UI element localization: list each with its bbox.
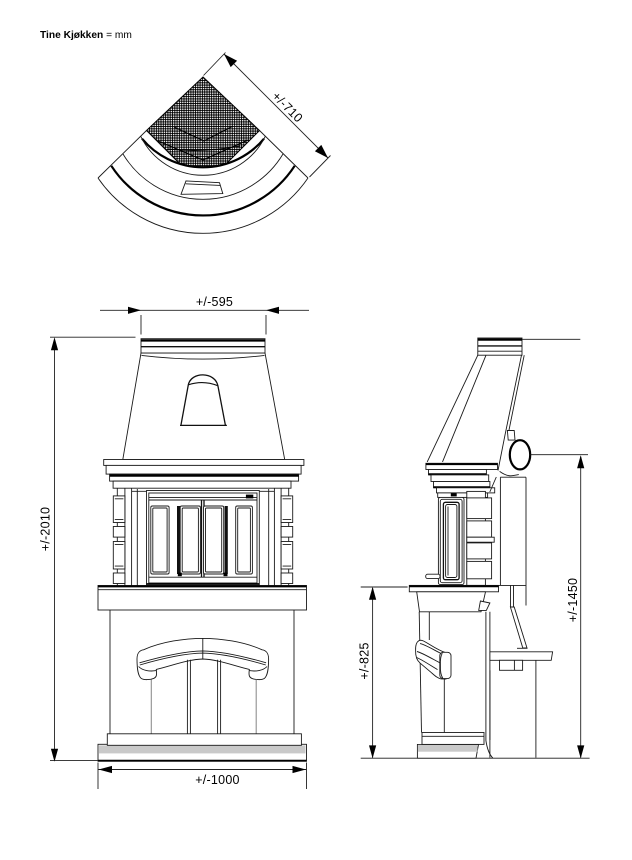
svg-text:+/-710: +/-710	[269, 89, 305, 125]
svg-text:+/-595: +/-595	[196, 295, 233, 309]
svg-text:+/-2010: +/-2010	[39, 507, 53, 552]
svg-text:+/-825: +/-825	[358, 642, 372, 679]
svg-text:Tine Kjøkken = mm: Tine Kjøkken = mm	[40, 30, 132, 41]
svg-text:+/-1000: +/-1000	[195, 773, 240, 787]
svg-text:+/-1450: +/-1450	[566, 578, 580, 623]
